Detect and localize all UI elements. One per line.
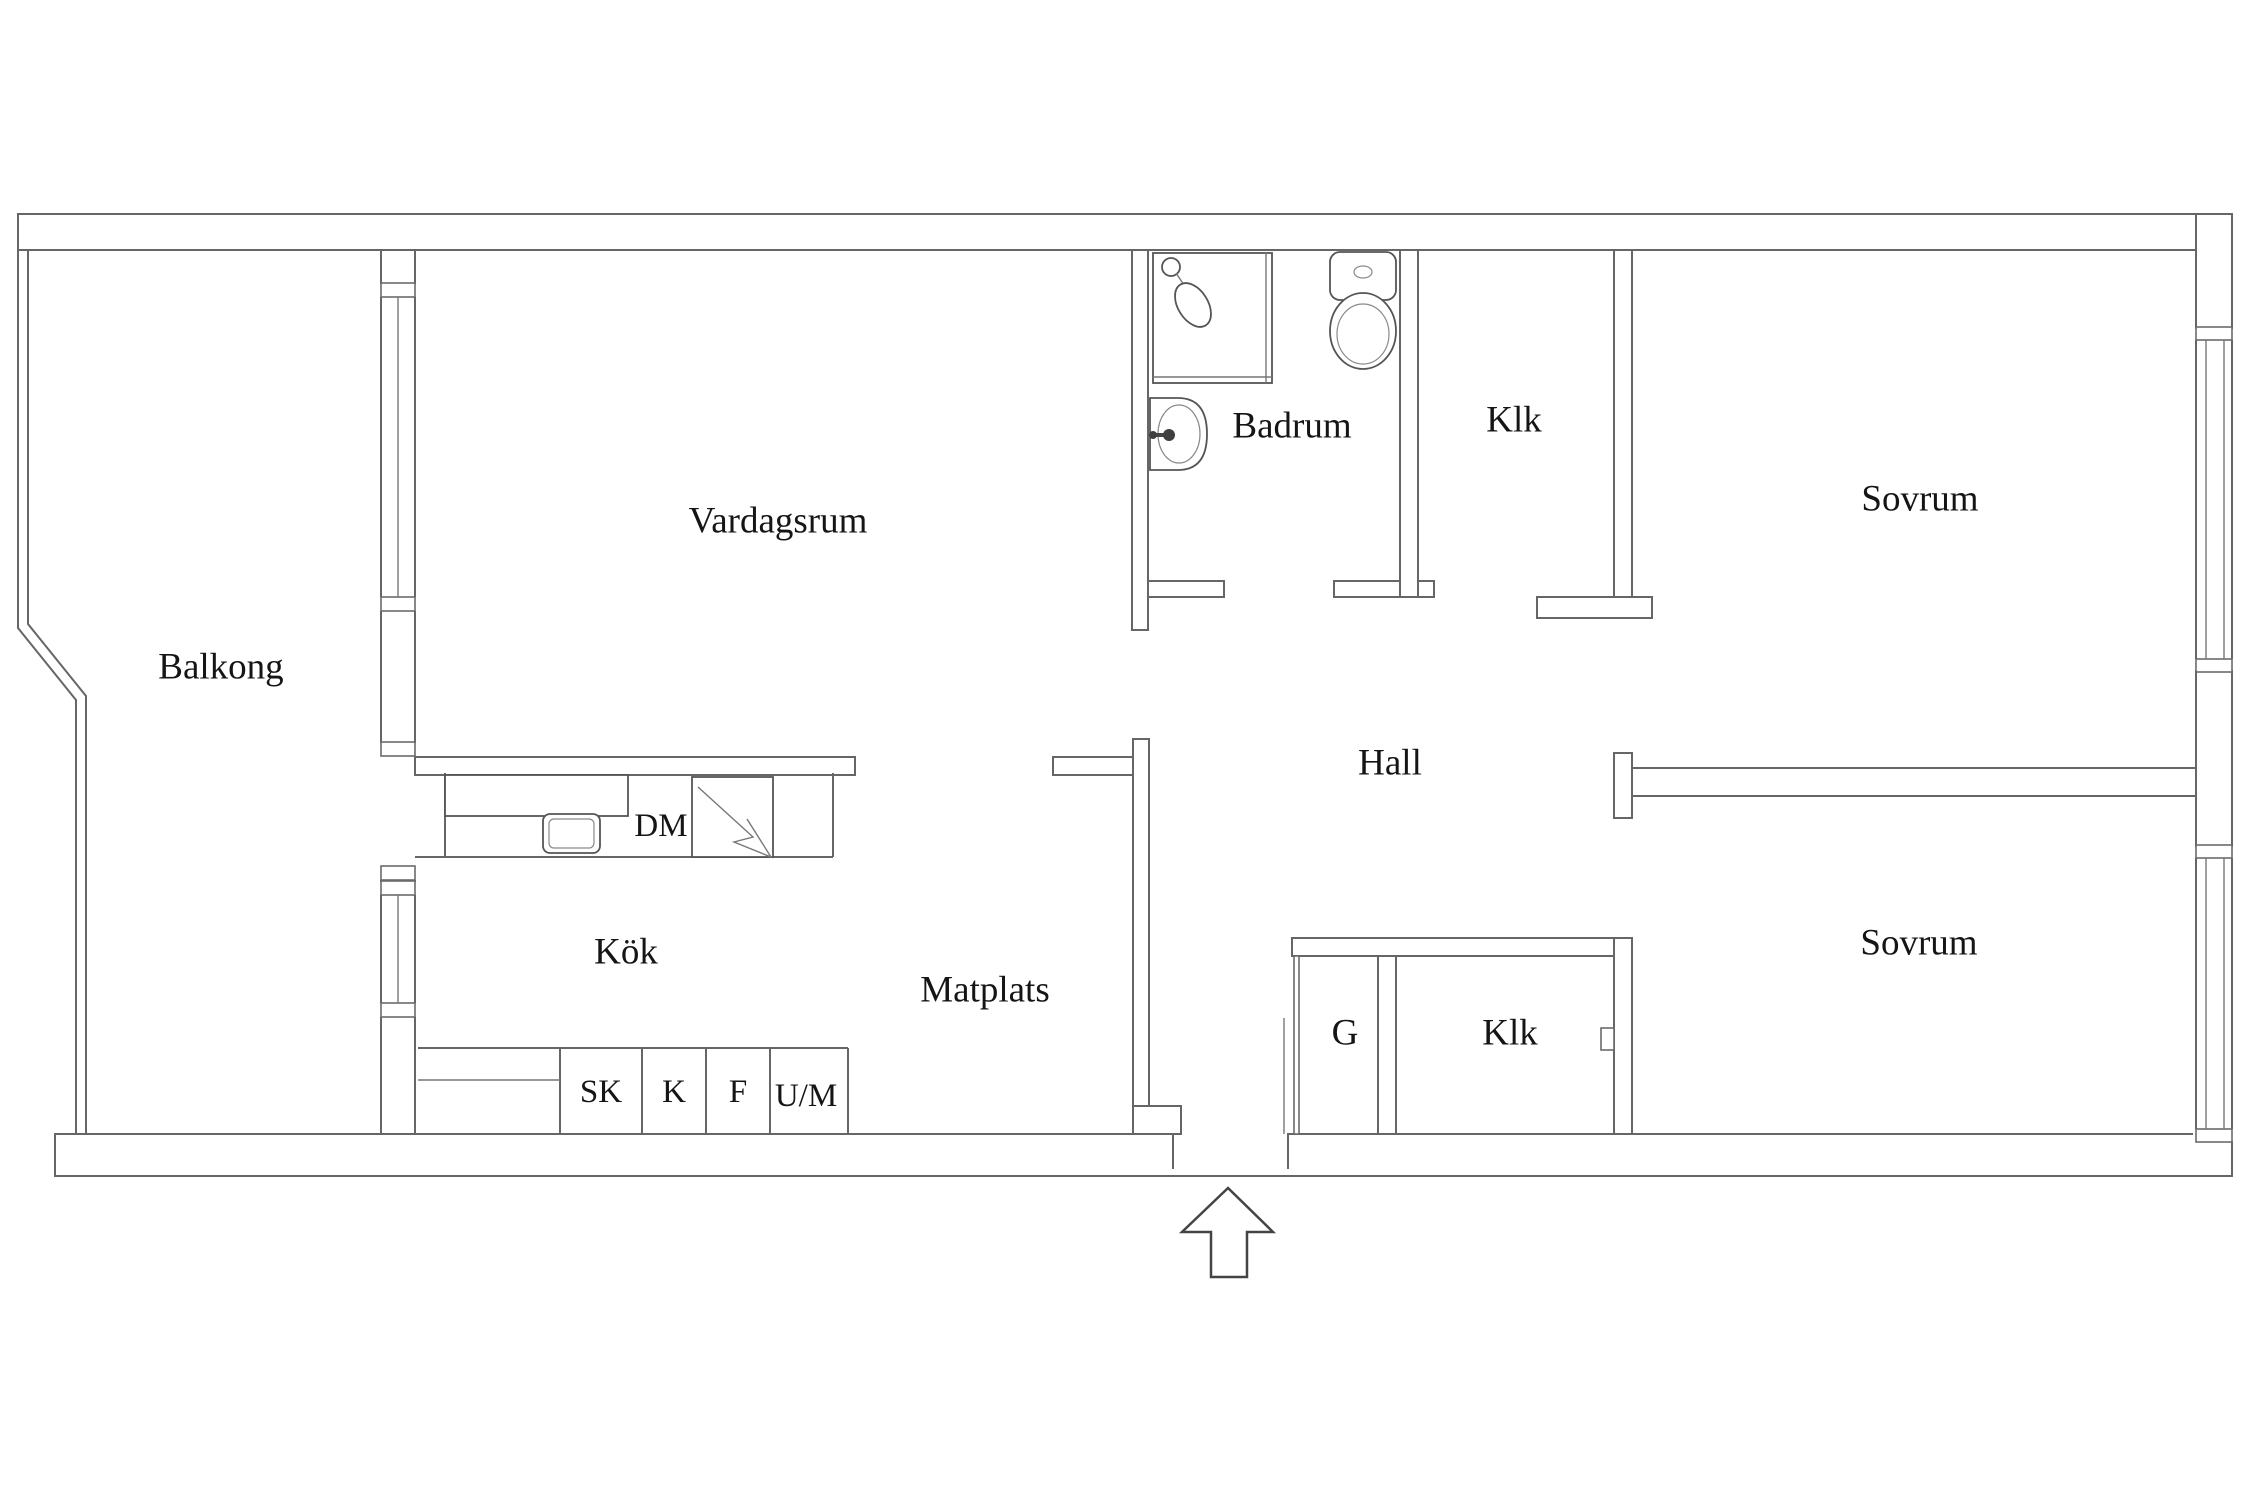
stove-lightning-icon [692,777,773,857]
wall-matplats-stub [1053,757,1133,775]
door-balcony [379,742,417,880]
window-right-sovrum-top [2193,327,2235,672]
shower-icon [1153,253,1272,383]
wall-badrum-right [1400,250,1418,597]
window-balcony-vardagsrum [379,283,417,611]
exterior-walls [18,214,2232,1176]
wall-top [18,214,2232,250]
wall-closets-top [1292,938,1614,956]
entrance-opening [1173,1132,1288,1169]
appliance-label-sk: SK [580,1074,622,1110]
wall-matplats-hall [1133,739,1149,1134]
appliance-label-um: U/M [775,1078,837,1114]
room-label-sovrum-bottom: Sovrum [1860,923,1977,964]
interior-walls [415,250,2196,1134]
appliance-label-k: K [662,1074,686,1110]
wall-g-klk-divider [1378,956,1396,1134]
floor-plan-drawing: BalkongVardagsrumBadrumKlkSovrumHallKökM… [0,0,2250,1500]
room-label-sovrum-top: Sovrum [1861,479,1978,520]
window-balcony-kok [379,881,417,1017]
wall-kok-vardagsrum [415,757,855,775]
wall-sovrum-bottom-left [1614,938,1632,1134]
wall-cap-sovrum-doors [1614,753,1632,818]
room-label-hall: Hall [1358,743,1422,784]
washbasin-icon [1149,398,1207,470]
window-right-sovrum-bottom [2193,845,2235,1142]
toilet-icon [1330,252,1396,369]
room-label-klk-bottom: Klk [1482,1013,1538,1054]
door-stop-klk-bottom [1601,1028,1614,1050]
wall-badrum-door-jamb-left [1148,581,1224,597]
wall-badrum-left [1132,250,1148,630]
appliance-label-dm: DM [634,808,687,844]
appliance-label-f: F [729,1074,747,1110]
wall-bottom [55,1134,2232,1176]
room-label-vardagsrum: Vardagsrum [689,501,868,542]
shower-head-icon [1162,258,1180,276]
balcony-railing [18,250,86,1134]
room-label-balkong: Balkong [158,647,283,688]
room-label-kok: Kök [594,932,658,973]
room-label-badrum: Badrum [1232,406,1351,447]
wall-sovrum-divider [1632,768,2196,796]
floor-plan-page: BalkongVardagsrumBadrumKlkSovrumHallKökM… [0,0,2250,1500]
wall-klk-top-right [1614,250,1632,597]
wall-balcony-interior [379,250,417,1134]
counter-cabinet [445,775,628,816]
room-label-klk-top: Klk [1486,400,1542,441]
entrance-arrow-icon [1182,1188,1273,1277]
wall-g-left [1294,956,1299,1134]
room-label-matplats: Matplats [920,970,1049,1011]
wall-entrance-jamb-foot [1133,1106,1181,1134]
wall-klk-top-door-jamb [1537,597,1652,618]
room-label-garderob: G [1332,1013,1359,1054]
